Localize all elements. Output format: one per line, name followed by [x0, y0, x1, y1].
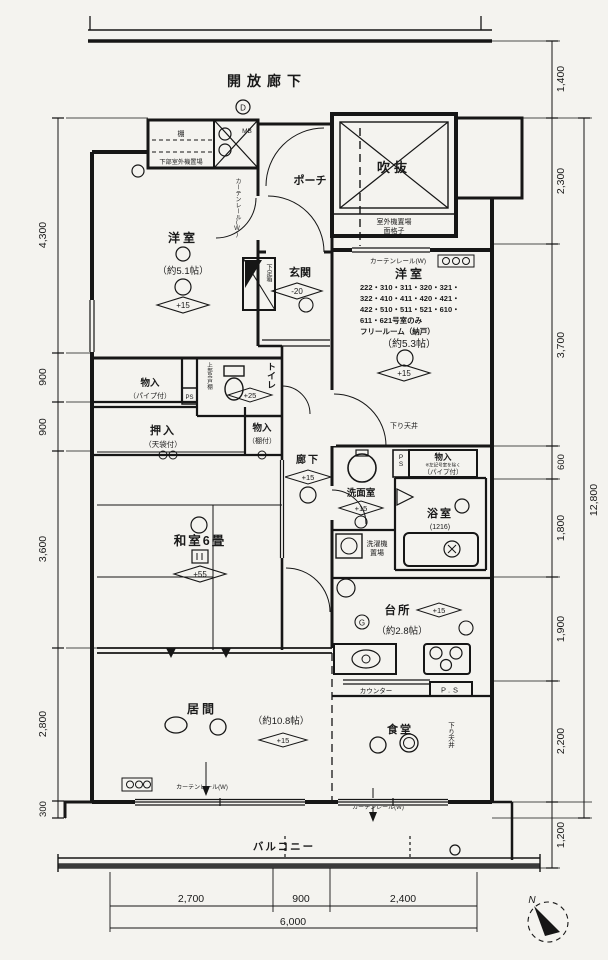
counter-row: カウンター P.S	[332, 680, 492, 696]
drain-icon	[450, 845, 460, 855]
open-corridor-label: 開放廊下	[227, 73, 307, 89]
bath-label: 浴室	[427, 506, 453, 520]
floor-plan-drawing: 開放廊下 吹抜 室外機置場 面格子 MB 棚 下部室外機置場	[0, 0, 608, 960]
arrow-icon	[202, 786, 210, 796]
compass: N	[528, 895, 568, 942]
dim-right-0: 1,400	[555, 66, 567, 92]
floor-plan-page: 開放廊下 吹抜 室外機置場 面格子 MB 棚 下部室外機置場	[0, 0, 608, 960]
japanese-room-label: 和室6畳	[173, 533, 226, 548]
lower-outdoor-label: 下部室外機置場	[159, 158, 202, 166]
dim-left-3: 3,600	[37, 536, 49, 562]
closet-row: 押入 （天袋付） 物入 （棚付）	[92, 407, 282, 459]
west2-rooms-2: 322・410・411・420・421・	[360, 294, 460, 303]
washroom-level-marker: +15	[339, 501, 383, 515]
void-atrium: 吹抜 室外機置場 面格子	[332, 114, 456, 236]
west2-rooms-4: 611・621号室のみ	[360, 315, 423, 325]
kitchen: 台所 +15 （約2.8帖） G	[332, 578, 492, 674]
void-label: 吹抜	[377, 160, 411, 175]
lattice-label: 面格子	[384, 226, 405, 235]
west1-level-marker: +15	[157, 297, 209, 313]
ps-label-3: P.S	[441, 686, 461, 695]
circled-d-mark: D	[236, 100, 250, 114]
lowered-ceiling-1: 下り天井	[390, 421, 418, 430]
storage1-label: 物入	[140, 377, 160, 389]
hall-level: +15	[302, 473, 315, 482]
storage1-sub: （パイプ付）	[129, 391, 171, 400]
entrance-level: -20	[291, 287, 303, 296]
dim-right-2: 3,700	[555, 332, 567, 358]
kitchen-size: （約2.8帖）	[376, 625, 427, 637]
storage3-sub: （パイプ付）	[424, 467, 463, 476]
d-letter: D	[240, 104, 246, 113]
dim-left-0: 4,300	[37, 222, 49, 248]
japanese-room-level: +55	[193, 570, 207, 579]
storage1: 物入 （パイプ付） PS	[92, 358, 197, 404]
storage2-sub: （棚付）	[248, 436, 276, 445]
dim-right-5: 1,900	[555, 616, 567, 642]
laundry-label-1: 洗濯機	[367, 539, 388, 548]
bathtub-icon	[404, 533, 478, 566]
balcony-windows	[135, 798, 448, 806]
toilet-level: +25	[244, 391, 257, 400]
dim-right-3: 600	[556, 454, 567, 470]
door-gap	[328, 486, 336, 520]
closet-label: 押入	[150, 423, 176, 437]
dim-bottom-2: 2,400	[390, 893, 416, 905]
north-needle-icon	[534, 906, 560, 936]
lowered-ceiling-2: 下り天井	[447, 722, 455, 750]
japanese-room-level-marker: +55	[174, 566, 226, 582]
washbasin-icon	[348, 454, 376, 482]
dim-left-1: 900	[37, 368, 49, 386]
counter-label: カウンター	[360, 686, 393, 695]
structure-block	[456, 118, 522, 198]
porch: ポーチ	[266, 128, 360, 250]
dim-left-5: 300	[38, 801, 49, 817]
bath-size: (1216)	[430, 524, 450, 531]
dim-right-6: 2,200	[555, 728, 567, 754]
dimensions-right: 1,400 2,300 3,700 600 1,800 1,900 2,200 …	[492, 41, 600, 868]
dim-left-4: 2,800	[37, 711, 49, 737]
curtain-rail-label-1: カーテンレール(W)	[234, 178, 241, 238]
open-corridor: 開放廊下	[88, 16, 492, 89]
closet-sub: （天袋付）	[144, 439, 182, 449]
laundry-label-2: 置場	[370, 548, 384, 557]
outdoor-unit-label: 室外機置場	[377, 217, 412, 226]
living-label: 居間	[187, 702, 217, 716]
circled-g-mark: G	[355, 615, 369, 629]
west2-rooms-1: 222・310・311・320・321・	[360, 283, 460, 292]
north-label: N	[528, 895, 536, 906]
mb-label: MB	[242, 128, 252, 135]
dim-bottom-1: 900	[292, 893, 310, 905]
kitchen-sink-icon	[334, 644, 396, 674]
toilet-shelf-label: 上部吊戸棚	[206, 361, 213, 391]
entrance-label: 玄関	[289, 265, 311, 279]
porch-label: ポーチ	[294, 173, 327, 187]
dim-right-7: 1,200	[555, 822, 567, 848]
g-letter: G	[359, 619, 365, 628]
west1-level: +15	[176, 301, 190, 310]
kitchen-level-marker: +15	[417, 603, 461, 617]
west2-rooms-3: 422・510・511・521・610・	[360, 305, 460, 314]
west1-label: 洋室	[168, 230, 198, 245]
window-gap	[88, 300, 96, 352]
entrance: 下足箱 玄関 -20	[243, 168, 332, 346]
hall-label: 廊下	[296, 453, 320, 466]
window-gap	[352, 246, 430, 254]
toilet: トイレ 上部吊戸棚 +25	[197, 358, 310, 416]
storage3-label: 物入	[434, 452, 452, 462]
west1-size: （約5.1帖）	[157, 265, 208, 277]
door-gap	[254, 196, 262, 240]
ps-label-2: PS	[398, 454, 405, 468]
storage3-note: ※左記号室を除く	[425, 462, 460, 469]
balcony-label: バルコニー	[253, 841, 315, 853]
dining-room: 食堂 下り天井 カーテンレール(W)	[352, 722, 455, 822]
toilet-label: トイレ	[266, 362, 276, 389]
dim-right-1: 2,300	[555, 168, 567, 194]
bathroom: 浴室 (1216)	[395, 478, 486, 570]
living-level-marker: +15	[259, 733, 307, 747]
living-level: +15	[277, 736, 290, 745]
arrow-icon	[369, 812, 377, 822]
kitchen-label: 台所	[385, 603, 412, 617]
west2-label: 洋室	[395, 266, 425, 281]
bath-door-icon	[397, 489, 413, 505]
shelf-label: 棚	[178, 129, 185, 138]
washroom-label: 洗面室	[347, 487, 376, 499]
storage2-label: 物入	[252, 422, 272, 434]
japanese-room: 和室6畳 +55	[97, 455, 285, 650]
dim-right-total: 12,800	[588, 484, 600, 516]
kitchen-level: +15	[433, 606, 446, 615]
west-room-2: カーテンレール(W) 洋室 222・310・311・320・321・ 322・4…	[328, 246, 492, 446]
dim-right-4: 1,800	[555, 515, 567, 541]
hall-level-marker: +15	[285, 470, 331, 484]
living-room: 居間 （約10.8帖） +15 カーテンレール(W)	[97, 648, 332, 800]
ps-label-1: PS	[185, 395, 193, 401]
shoebox-label: 下足箱	[265, 264, 272, 283]
laundry-area: 洗濯機 置場	[336, 534, 388, 597]
curtain-rail-label-4: カーテンレール(W)	[176, 784, 228, 791]
west2-level: +15	[397, 369, 411, 378]
west2-rooms-5: フリールーム（納戸）	[360, 326, 435, 336]
dimensions-bottom: 2,700 900 2,400 6,000	[110, 868, 477, 932]
entrance-level-marker: -20	[272, 283, 322, 299]
dim-left-2: 900	[37, 418, 49, 436]
door-gap	[328, 390, 336, 446]
dim-bottom-total: 6,000	[280, 916, 306, 928]
living-size: （約10.8帖）	[253, 715, 310, 727]
west2-level-marker: +15	[378, 365, 430, 381]
west2-size: （約5.3帖）	[382, 337, 436, 350]
curtain-rail-label-2: カーテンレール(W)	[370, 257, 426, 265]
balcony: バルコニー	[58, 802, 540, 872]
dim-bottom-0: 2,700	[178, 893, 204, 905]
